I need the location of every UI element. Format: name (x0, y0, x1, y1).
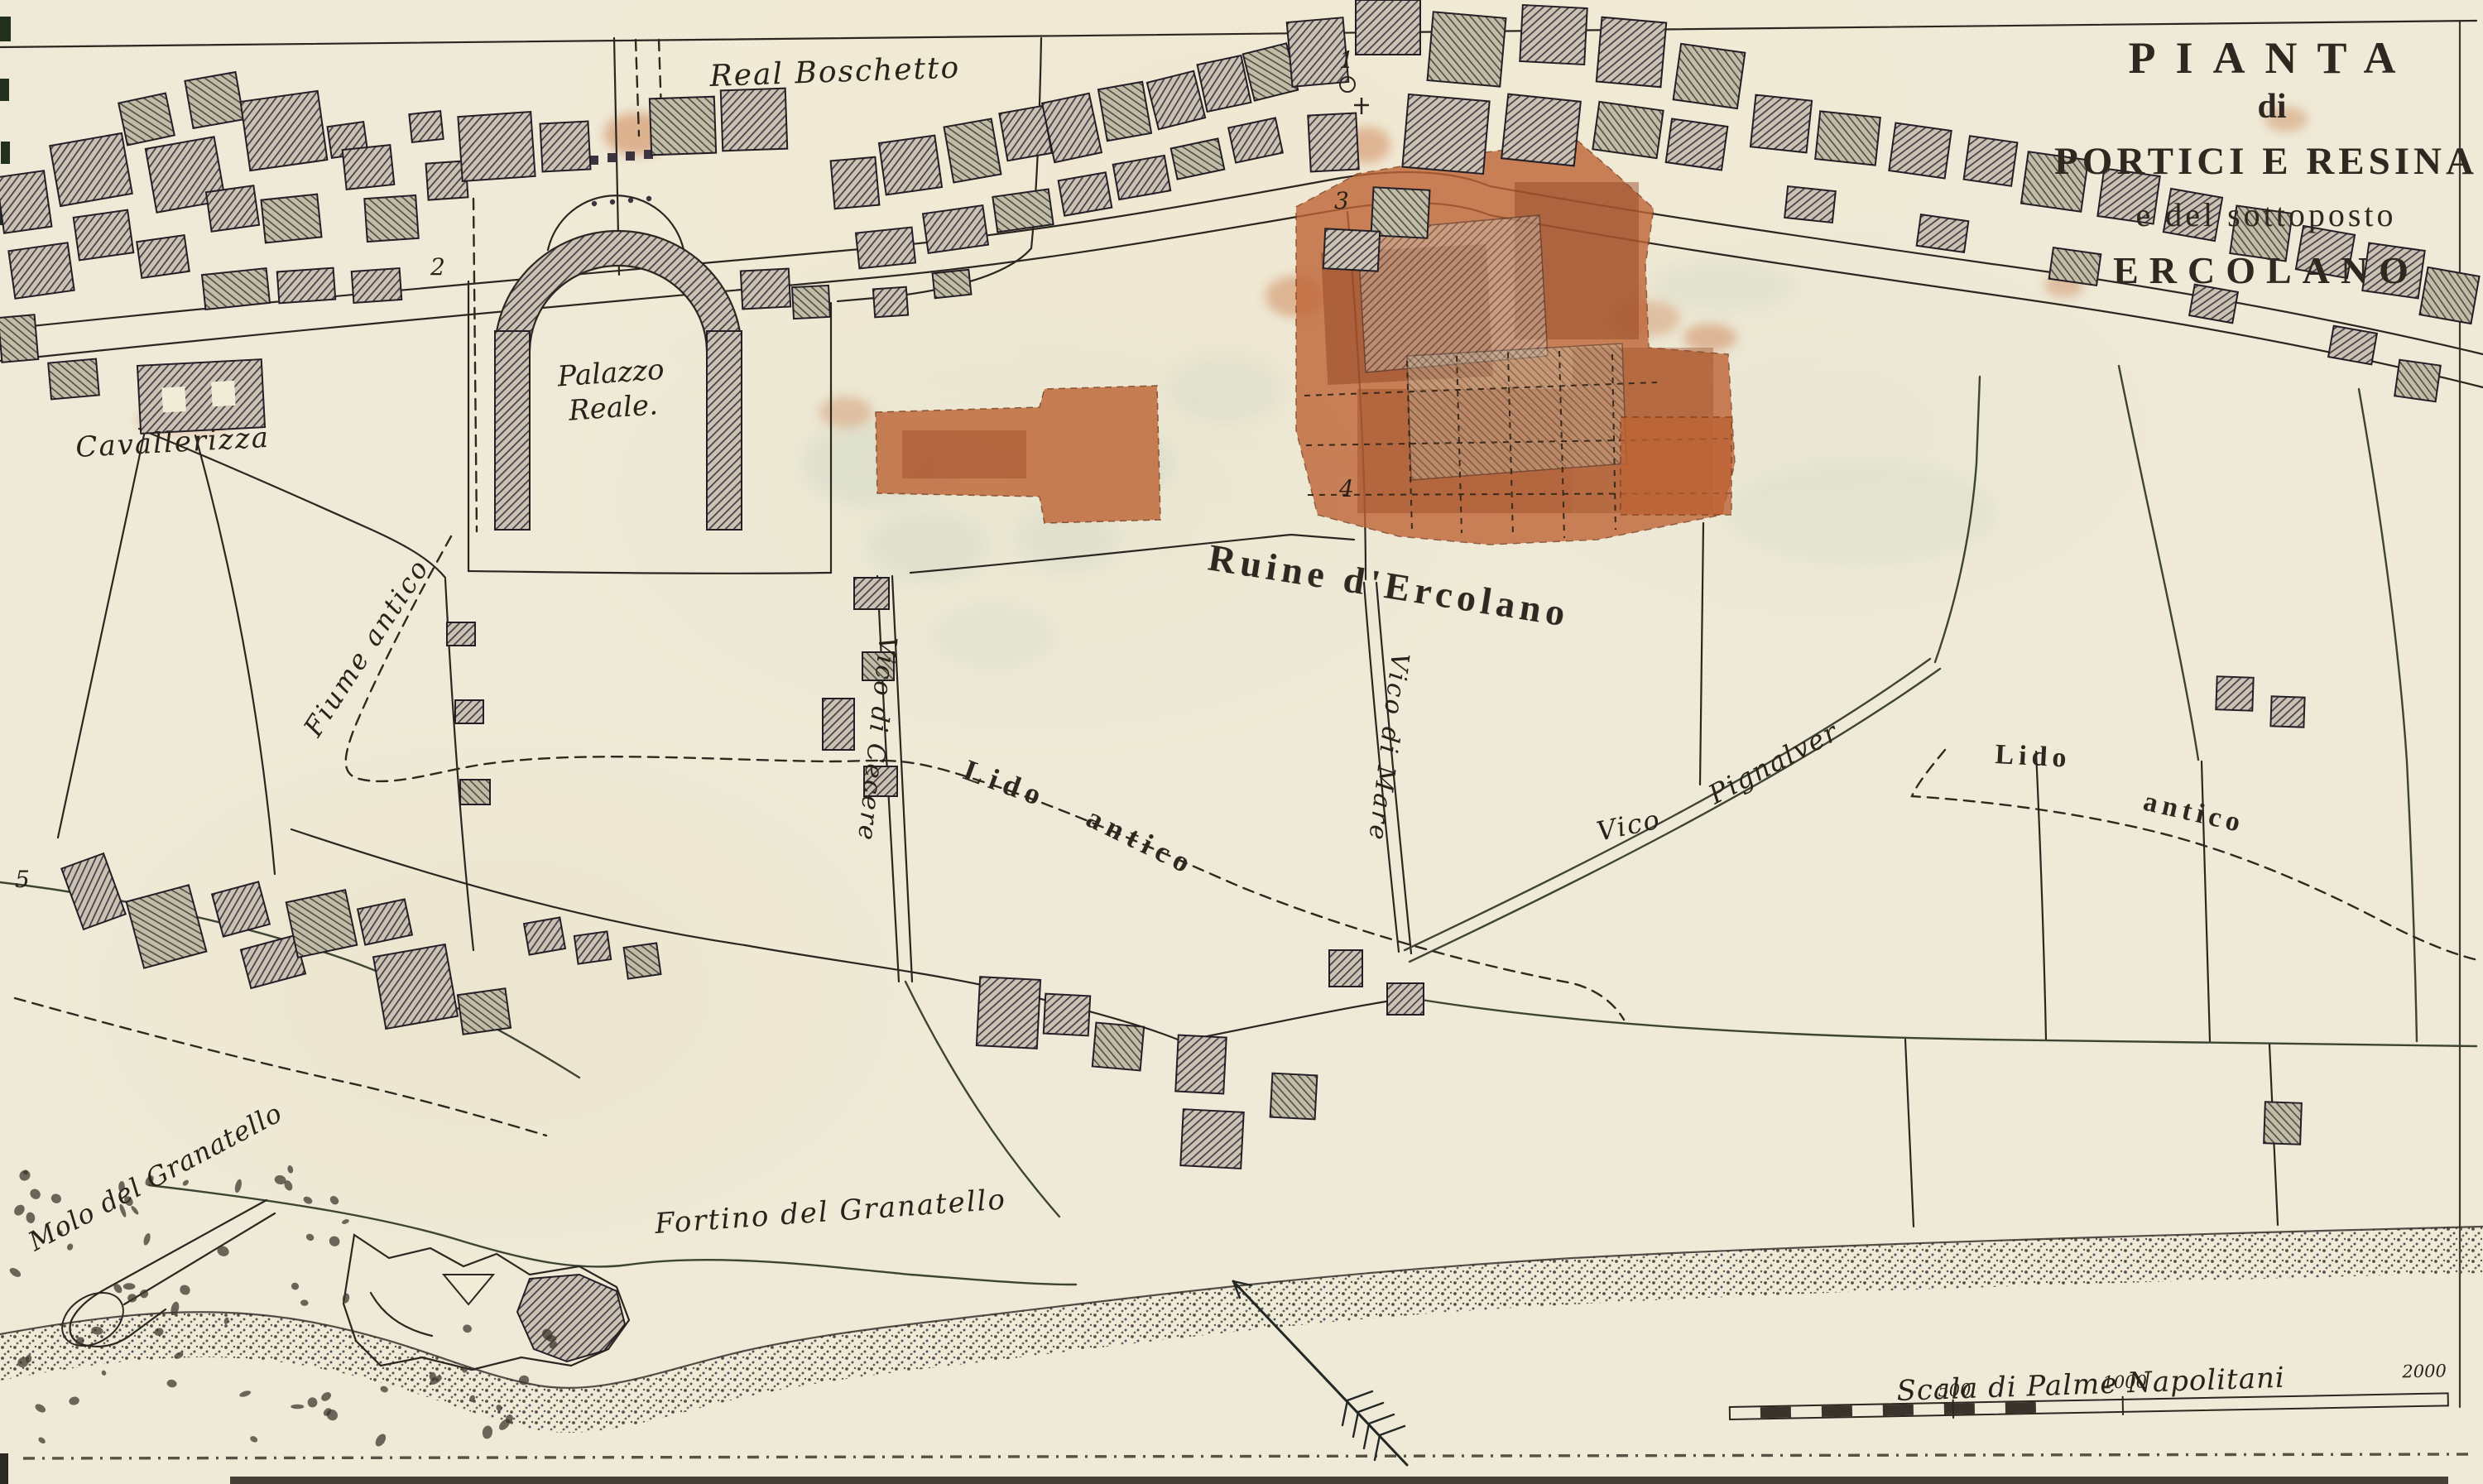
scale-tick-2000: 2000 (2401, 1361, 2447, 1381)
label-antico-center: antico (1081, 800, 1201, 881)
building-block (409, 111, 443, 142)
building-block (944, 118, 1001, 182)
marker-3: 3 (1334, 187, 1349, 214)
building-block (0, 170, 51, 233)
title-line-4: e del sottoposto (2135, 196, 2396, 233)
scale-tick-1000: 1000 (2102, 1371, 2147, 1392)
pebble (8, 1266, 22, 1279)
pebble (28, 1187, 43, 1201)
building-block (2216, 676, 2253, 711)
building-block (206, 185, 259, 232)
building-block (2270, 696, 2304, 727)
pebble (68, 1395, 79, 1405)
building-block (127, 885, 207, 968)
scale-cell (1760, 1407, 1791, 1419)
pebble (166, 1379, 177, 1388)
pebble (238, 1390, 252, 1398)
pebble (142, 1232, 151, 1246)
building-block (358, 899, 412, 944)
building-block (277, 268, 335, 304)
building-block (721, 89, 788, 151)
pebble (373, 1432, 388, 1448)
building-block (241, 91, 328, 170)
building-block (8, 243, 74, 298)
label-lido-right: Lido (1995, 739, 2072, 774)
label-palazzo-line1: Palazzo (555, 353, 665, 394)
building-block (856, 228, 915, 269)
building-block (137, 235, 190, 278)
pebble (34, 1402, 47, 1414)
building-block (185, 72, 243, 128)
building-block (1501, 94, 1581, 166)
building-block (1113, 156, 1171, 199)
pebble (101, 1370, 108, 1376)
label-molo-granatello: Molo del Granatello (22, 1097, 287, 1257)
title-line-1: PIANTA (2128, 33, 2415, 83)
building-block (1387, 983, 1424, 1015)
building-block (447, 622, 475, 646)
building-block (0, 315, 38, 363)
building-block (1093, 1023, 1144, 1071)
pebble (307, 1397, 317, 1407)
scale-tick-500: 500 (1938, 1380, 1972, 1400)
building-block (1270, 1073, 1318, 1120)
building-block (854, 578, 889, 609)
pebble (286, 1165, 294, 1174)
map-canvas: PIANTA di PORTICI E RESINA e del sottopo… (0, 0, 2483, 1484)
label-vico-pignalver-2: Pignalver (1703, 716, 1844, 811)
label-fortino-granatello: Fortino del Granatello (653, 1183, 1007, 1241)
building-block (364, 195, 418, 242)
label-palazzo-reale: Palazzo Reale. (555, 353, 667, 429)
building-block (574, 931, 611, 963)
building-block (2264, 1102, 2302, 1145)
building-block (650, 97, 716, 156)
building-block (1889, 123, 1951, 179)
pebble (329, 1194, 341, 1207)
label-real-boschetto: Real Boschetto (708, 50, 961, 94)
building-block (992, 189, 1053, 232)
building-block (1308, 113, 1358, 172)
title-line-2: di (2257, 88, 2286, 126)
label-vico-di-cecere: Vico di Cecere (852, 635, 902, 843)
building-block (1402, 94, 1489, 174)
label-antico-right: antico (2140, 786, 2248, 839)
shoreline (0, 1227, 2483, 1433)
building-block (741, 269, 790, 310)
ruins-theatre (1621, 417, 1731, 515)
building-block (1597, 17, 1667, 88)
building-block (460, 780, 490, 804)
building-block (540, 122, 591, 172)
building-block (1198, 55, 1251, 112)
pebble (379, 1385, 388, 1393)
pebble (216, 1245, 231, 1258)
pebble (300, 1299, 309, 1306)
building-block (1815, 111, 1880, 165)
title-block: PIANTA di PORTICI E RESINA e del sottopo… (2054, 33, 2478, 291)
building-block (74, 210, 134, 261)
building-block (879, 136, 942, 195)
pebble (26, 1212, 36, 1224)
building-block (977, 977, 1040, 1049)
building-block (1674, 44, 1746, 108)
building-block (1964, 136, 2018, 186)
building-block (1428, 12, 1506, 86)
label-fiume-antico: Fiume antico (297, 552, 436, 742)
label-ruine-ercolano: Ruine d'Ercolano (1205, 536, 1573, 635)
building-block (831, 157, 880, 209)
building-block (1592, 102, 1663, 158)
building-block (458, 112, 535, 181)
marker-1: 1 (1339, 46, 1354, 74)
pebble (302, 1195, 314, 1205)
building-block (458, 988, 511, 1035)
building-block (823, 699, 854, 750)
marker-5: 5 (15, 866, 30, 893)
pebble (66, 1242, 74, 1251)
building-block (2328, 326, 2377, 365)
building-block (1098, 82, 1151, 141)
pebble (291, 1282, 300, 1291)
building-block (352, 268, 402, 303)
building-block (923, 205, 988, 253)
marker-2: 2 (430, 253, 445, 281)
pebble (178, 1283, 192, 1297)
historic-map-portici-resina: PIANTA di PORTICI E RESINA e del sottopo… (0, 0, 2483, 1484)
building-block (2419, 267, 2479, 324)
building-block (118, 94, 175, 146)
building-block (50, 133, 132, 206)
pebble (249, 1435, 259, 1443)
title-line-3: PORTICI E RESINA (2054, 140, 2478, 183)
building-block (1329, 950, 1362, 987)
building-block (2394, 360, 2441, 402)
building-block (1147, 71, 1205, 129)
building-block (1356, 0, 1420, 55)
building-block (1171, 138, 1225, 179)
label-palazzo-line2: Reale. (567, 388, 659, 427)
building-block (1044, 994, 1090, 1036)
marker-4: 4 (1338, 475, 1354, 502)
building-block (1520, 5, 1587, 65)
pebble (482, 1425, 493, 1440)
pebble (305, 1232, 315, 1241)
building-block (1228, 118, 1283, 162)
building-block (1059, 172, 1112, 215)
building-block (61, 853, 125, 929)
building-block (1323, 228, 1380, 271)
pebble (50, 1192, 63, 1205)
building-block (624, 943, 661, 978)
pebble (341, 1218, 349, 1225)
pebble (328, 1234, 342, 1248)
pebble (319, 1390, 333, 1403)
building-block (2049, 247, 2101, 286)
building-block (212, 881, 270, 936)
building-block (792, 286, 830, 319)
building-block (933, 270, 972, 298)
building-block (202, 268, 270, 310)
building-block (373, 944, 458, 1029)
label-lido-center: Lido (959, 753, 1051, 814)
building-block (1751, 95, 1812, 153)
building-block (286, 890, 358, 958)
label-vico-di-mare: Vico di Mare (1362, 651, 1414, 844)
building-block (873, 287, 908, 318)
building-block (1917, 214, 1969, 252)
pebble (37, 1436, 46, 1445)
pebble (12, 1203, 27, 1217)
pebble (233, 1179, 243, 1193)
building-block (1180, 1109, 1243, 1169)
title-line-5: ERCOLANO (2113, 249, 2419, 291)
building-block (48, 359, 99, 400)
building-block (1371, 187, 1430, 238)
pebble (123, 1283, 136, 1289)
scale-cell (1822, 1405, 1852, 1417)
pebble (462, 1323, 473, 1333)
building-block (1666, 119, 1728, 170)
label-cavallerizza: Cavallerizza (74, 421, 271, 464)
church-cross-icon (1354, 98, 1369, 114)
building-block (343, 145, 395, 190)
building-block (261, 195, 321, 243)
building-block (1784, 186, 1836, 223)
building-block (455, 700, 483, 723)
building-block (524, 917, 565, 954)
pebble (291, 1405, 304, 1410)
building-block (1175, 1035, 1226, 1094)
